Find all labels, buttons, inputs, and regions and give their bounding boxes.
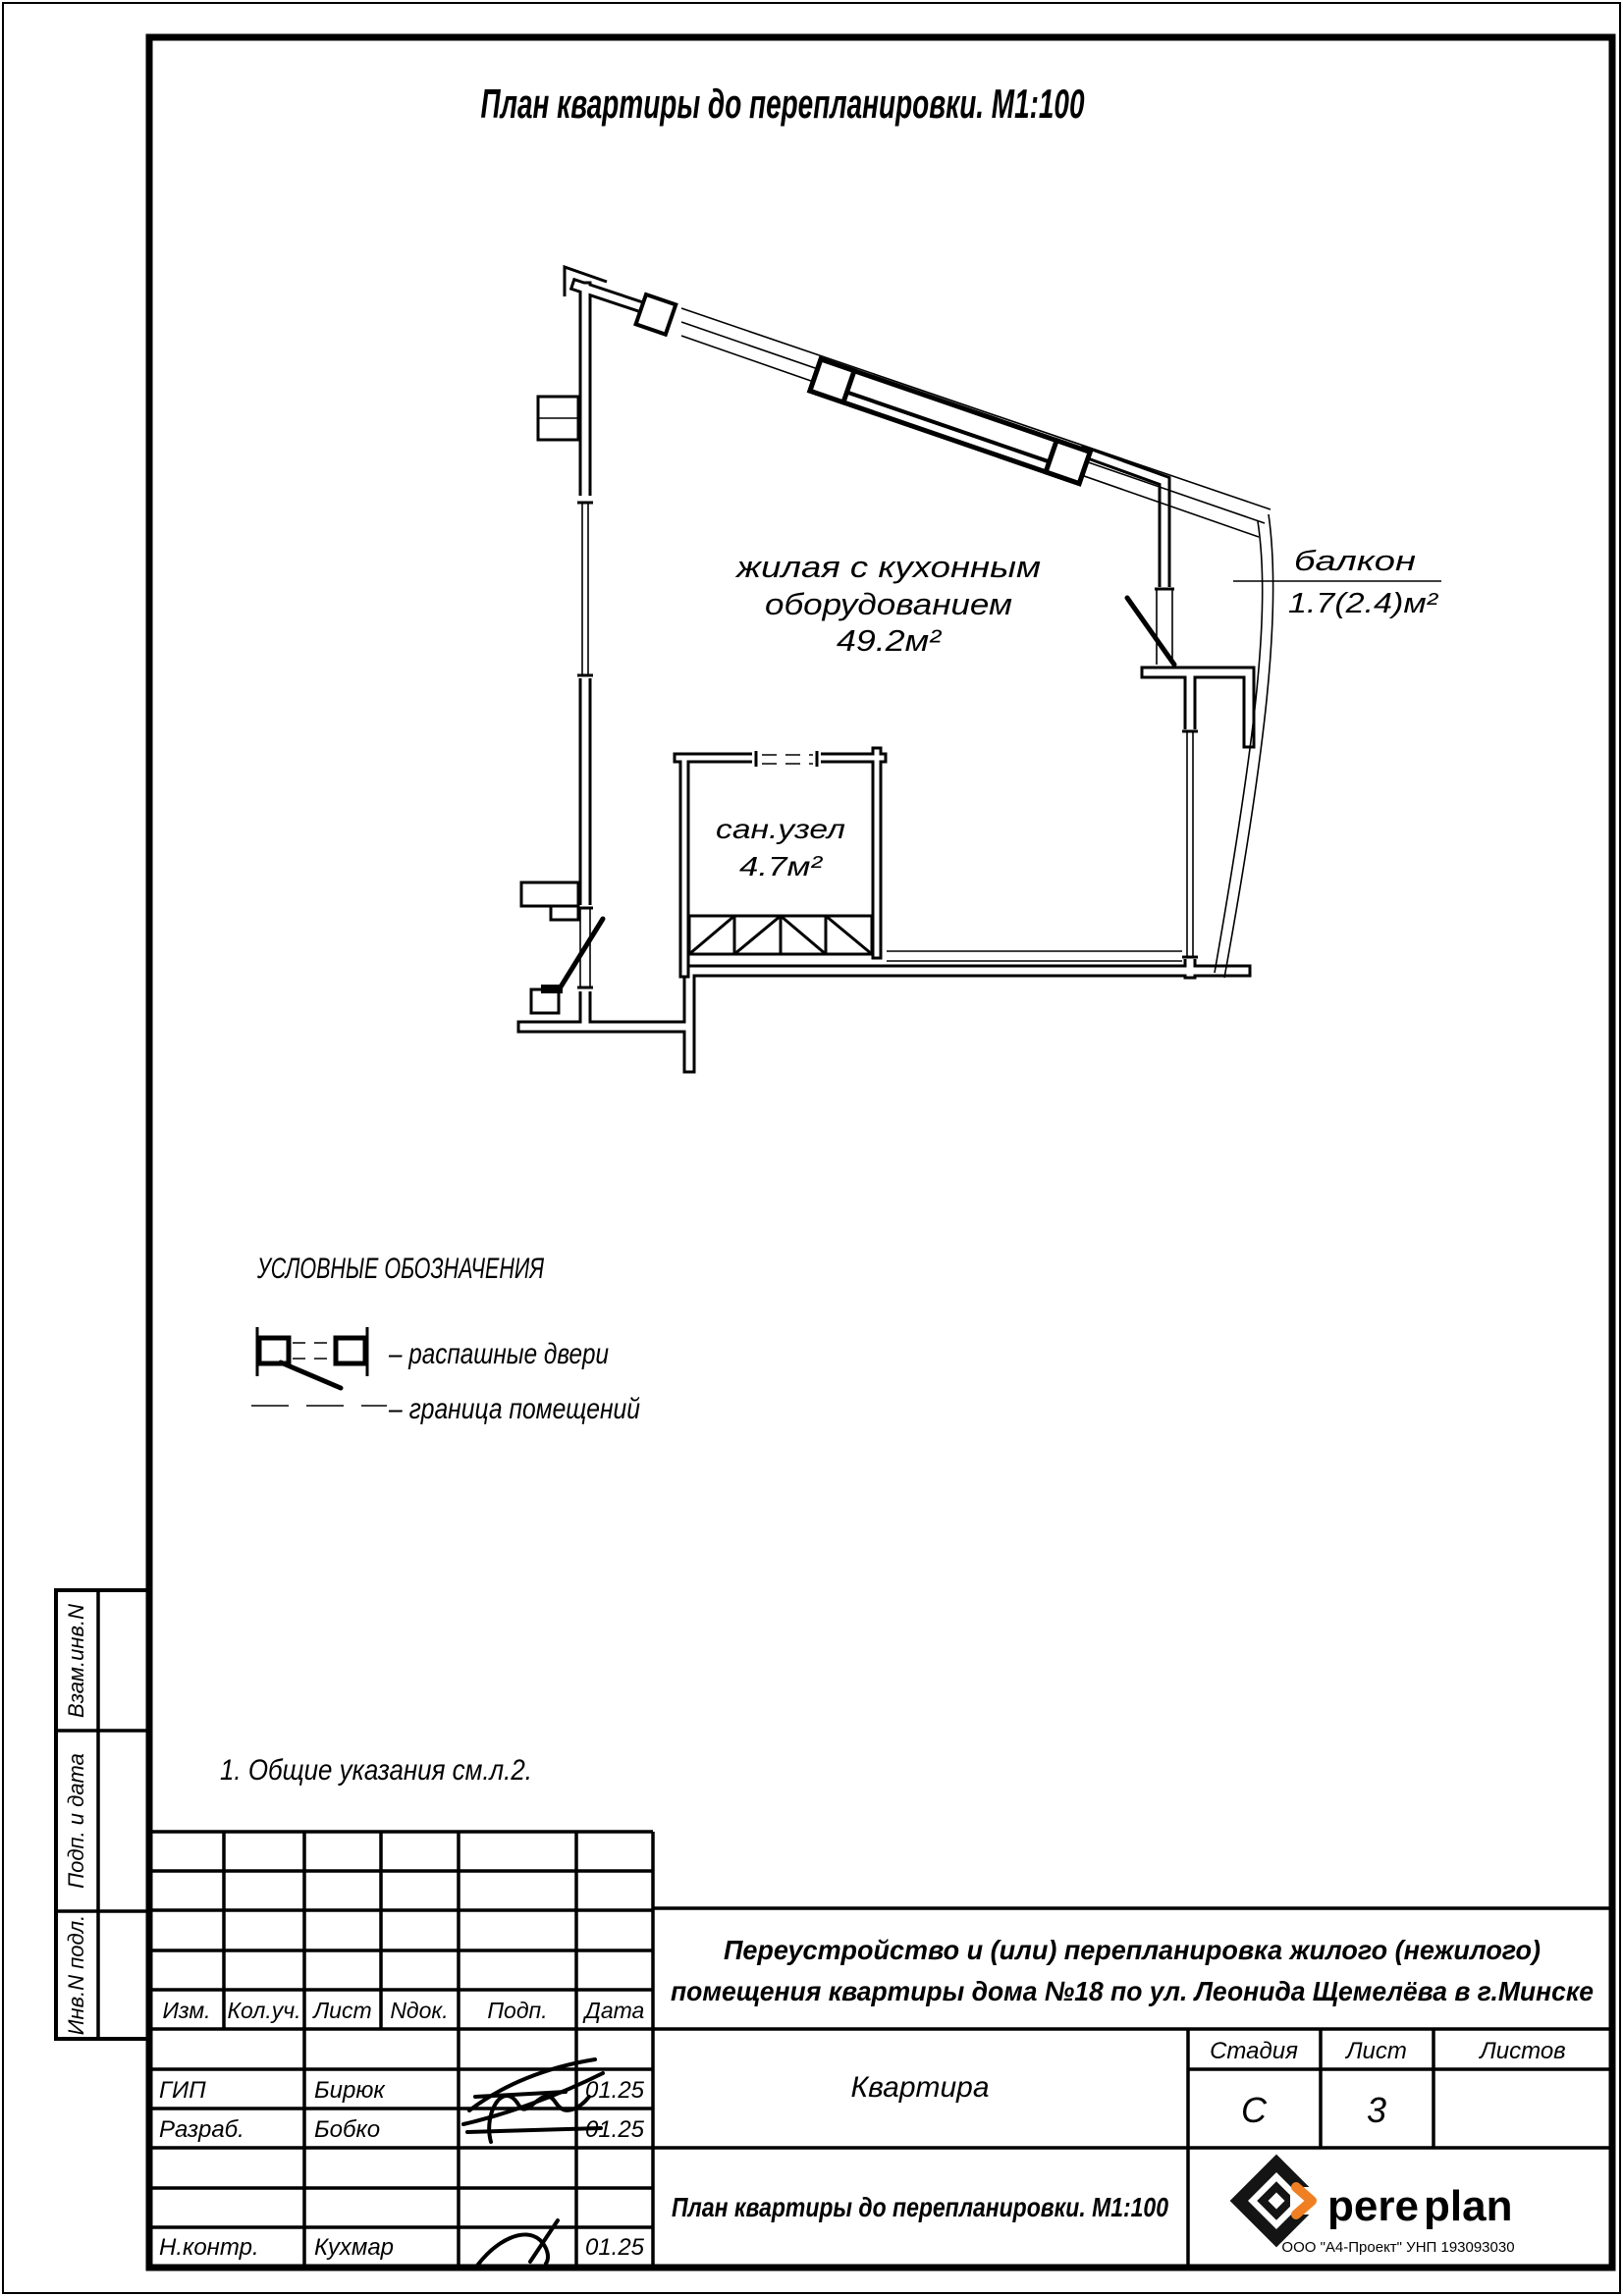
stage-value: С [1241,2090,1268,2130]
legend-item-doors: – распашные двери [388,1338,609,1370]
project-line2: помещения квартиры дома №18 по ул. Леони… [671,1976,1594,2006]
side-strip: Взам.инв.N Подп. и дата Инв.N подл. [56,1590,149,2039]
header-podp: Подп. [487,1998,547,2023]
role: ГИП [159,2077,206,2104]
drawing-name: План квартиры до перепланировки. М1:100 [672,2192,1168,2222]
legend-heading: УСЛОВНЫЕ ОБОЗНАЧЕНИЯ [256,1253,544,1285]
legend-item-boundary: – граница помещений [388,1393,640,1425]
logo-tagline: ООО "А4-Проект" УНП 193093030 [1281,2239,1514,2256]
swing-doors-icon [257,1327,367,1388]
logo-diamond-icon [1239,2163,1324,2238]
date: 01.25 [585,2234,645,2261]
revision-grid [149,1832,653,2268]
partition-line [887,951,1182,961]
strip-label-inv: Инв.N подл. [64,1915,88,2035]
logo: pere plan ООО "А4-Проект" УНП 193093030 [1239,2163,1515,2256]
stage-label: Стадия [1210,2038,1298,2064]
header-koluch: Кол.уч. [228,1998,301,2023]
title-block: Изм. Кол.уч. Лист Nдок. Подп. Дата ГИП Б… [149,1832,1612,2268]
strip-label-podp: Подп. и дата [64,1753,88,1889]
table-row-nkontr: Н.контр. Кухмар 01.25 [159,2234,645,2261]
strip-label-vzam: Взам.инв.N [64,1604,88,1718]
table-row-gip: ГИП Бирюк 01.25 [159,2077,645,2104]
project-line1: Переустройство и (или) перепланировка жи… [724,1935,1541,1965]
legend: УСЛОВНЫЕ ОБОЗНАЧЕНИЯ – распашные двери –… [251,1253,640,1425]
floor-plan: жилая с кухонным оборудованием 49.2м² са… [521,267,1441,1067]
sheets-label: Листов [1478,2038,1565,2064]
right-window-gap [1182,729,1198,959]
name: Кухмар [314,2234,394,2261]
pilaster-entrance-step [551,906,578,920]
date: 01.25 [585,2077,645,2104]
header-list: Лист [311,1998,371,2023]
room-label-line1: жилая с кухонным [734,550,1041,584]
pilaster-entrance [521,882,578,906]
left-window-gap [577,496,593,678]
room-area: 49.2м² [837,623,943,658]
sheet-value: 3 [1367,2090,1386,2130]
role: Н.контр. [159,2234,259,2261]
bathroom-area: 4.7м² [739,851,824,881]
bathroom-hatch [689,916,872,954]
name: Бобко [314,2116,380,2143]
balcony-label: балкон [1294,546,1416,577]
name: Бирюк [314,2077,386,2104]
logo-text-black: pere [1327,2182,1419,2230]
bathroom-label: сан.узел [716,814,845,844]
general-note: 1. Общие указания см.л.2. [220,1754,532,1787]
balcony-area: 1.7(2.4)м² [1288,588,1439,619]
header-ndok: Nдок. [390,1998,448,2023]
object-name: Квартира [850,2071,989,2104]
header-data: Дата [582,1998,645,2023]
window-balcony-unit [810,359,1090,484]
main-frame [149,37,1612,2268]
drawing-sheet: Взам.инв.N Подп. и дата Инв.N подл. План… [0,0,1623,2296]
page-title: План квартиры до перепланировки. М1:100 [481,80,1085,127]
logo-text-orange: plan [1424,2182,1512,2230]
header-izm: Изм. [162,1998,210,2023]
sheet-canvas: Взам.инв.N Подп. и дата Инв.N подл. План… [0,0,1623,2296]
role: Разраб. [159,2116,244,2143]
sheet-label: Лист [1344,2038,1407,2064]
room-label-line2: оборудованием [765,587,1012,621]
signature-scribble [463,2059,603,2142]
